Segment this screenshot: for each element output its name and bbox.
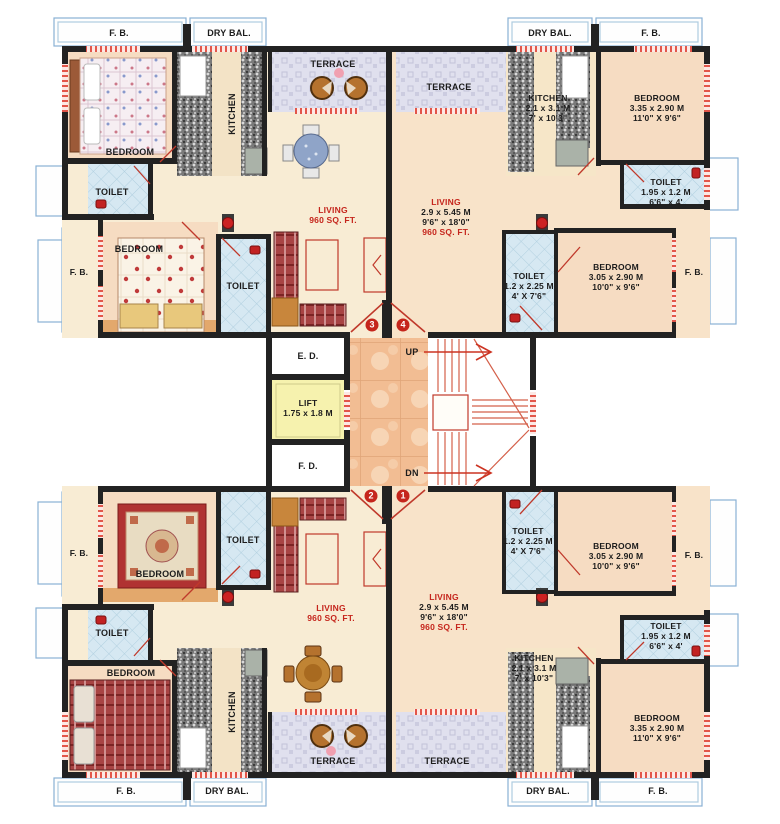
room-dim-ft: 11'0" X 9'6" [630, 733, 685, 743]
living-name: LIVING [307, 603, 355, 613]
room-dim-m: 1.95 x 1.2 M [641, 187, 691, 197]
room-dim-m: 3.35 x 2.90 M [630, 103, 685, 113]
lift-name: LIFT [283, 398, 333, 408]
bedroom2-label-flat4: BEDROOM 3.05 x 2.90 M 10'0" x 9'6" [589, 262, 644, 292]
room-dim-m: 2.9 x 5.45 M [421, 207, 471, 217]
electrical-duct-label: E. D. [297, 351, 318, 361]
toilet2-label-flat2: TOILET [226, 535, 259, 545]
room-name: KITCHEN [512, 653, 557, 663]
bedroom2-label-flat2: BEDROOM [107, 668, 155, 678]
double-bed [70, 58, 166, 154]
room-dim-m: 2.9 x 5.45 M [419, 602, 469, 612]
living-label-flat2: LIVING 960 SQ. FT. [307, 603, 355, 623]
double-bed [70, 680, 170, 770]
lift-dim: 1.75 x 1.8 M [283, 408, 333, 418]
fb-label-top-left: F. B. [109, 28, 129, 38]
fire-duct-label: F. D. [298, 461, 318, 471]
room-name: TOILET [641, 621, 691, 631]
lift-label: LIFT 1.75 x 1.8 M [283, 398, 333, 418]
room-name: TOILET [503, 526, 553, 536]
flat-number-3: 3 [366, 319, 379, 332]
stairs-up-label: UP [406, 347, 419, 357]
living-area: 960 SQ. FT. [421, 227, 471, 237]
room-dim-ft: 10'0" x 9'6" [589, 282, 644, 292]
room-dim-ft: 10'0" x 9'6" [589, 561, 644, 571]
fb-label-right-flat1: F. B. [685, 550, 703, 560]
room-dim-m: 3.05 x 2.90 M [589, 272, 644, 282]
fb-label-top-right: F. B. [641, 28, 661, 38]
living-area: 960 SQ. FT. [419, 622, 469, 632]
fb-label-right-flat4: F. B. [685, 267, 703, 277]
stairs-dn-label: DN [405, 468, 418, 478]
floor-plan-drawing [0, 0, 780, 824]
dry-balcony-label-bottom-right: DRY BAL. [526, 786, 570, 796]
room-dim-m: 2.1 x 3.1 M [526, 103, 571, 113]
room-dim-m: 1.2 x 2.25 M [504, 281, 554, 291]
living-name: LIVING [419, 592, 469, 602]
flat-number-1: 1 [397, 490, 410, 503]
toilet2-label-flat3: TOILET [226, 281, 259, 291]
terrace-label-flat1: TERRACE [425, 756, 470, 766]
room-name: BEDROOM [589, 541, 644, 551]
room-dim-ft: 4' X 7'6" [504, 291, 554, 301]
toilet1-label-flat2: TOILET [95, 628, 128, 638]
living-name: LIVING [421, 197, 471, 207]
living-area: 960 SQ. FT. [307, 613, 355, 623]
flat-number-2: 2 [365, 490, 378, 503]
living-name: LIVING [309, 205, 357, 215]
dry-balcony-label-bottom-left: DRY BAL. [205, 786, 249, 796]
fb-label-bottom-right: F. B. [648, 786, 668, 796]
bedroom1-label-flat4: BEDROOM 3.35 x 2.90 M 11'0" X 9'6" [630, 93, 685, 123]
living-area: 960 SQ. FT. [309, 215, 357, 225]
living-label-flat1: LIVING 2.9 x 5.45 M 9'6" x 18'0" 960 SQ.… [419, 592, 469, 632]
floor-plan: F. B. DRY BAL. DRY BAL. F. B. TERRACE TE… [0, 0, 780, 824]
room-dim-ft: 6'6" x 4' [641, 641, 691, 651]
toilet2-label-flat4: TOILET 1.2 x 2.25 M 4' X 7'6" [504, 271, 554, 301]
room-dim-ft: 11'0" X 9'6" [630, 113, 685, 123]
bedroom2-label-flat1: BEDROOM 3.05 x 2.90 M 10'0" x 9'6" [589, 541, 644, 571]
room-dim-ft: 9'6" x 18'0" [421, 217, 471, 227]
room-dim-ft: 9'6" x 18'0" [419, 612, 469, 622]
terrace-label-flat4: TERRACE [427, 82, 472, 92]
terrace-label-flat3: TERRACE [311, 59, 356, 69]
bedroom1-label-flat3: BEDROOM [106, 147, 154, 157]
room-dim-ft: 6'6" x 4' [641, 197, 691, 207]
toilet1-label-flat3: TOILET [95, 187, 128, 197]
room-name: TOILET [504, 271, 554, 281]
fb-label-left-flat2: F. B. [70, 548, 88, 558]
toilet2-label-flat1: TOILET 1.2 x 2.25 M 4' X 7'6" [503, 526, 553, 556]
room-dim-ft: 4' X 7'6" [503, 546, 553, 556]
kitchen-label-flat4: KITCHEN 2.1 x 3.1 M 7' x 10'3" [526, 93, 571, 123]
room-dim-m: 3.05 x 2.90 M [589, 551, 644, 561]
kitchen-label-flat2: KITCHEN [227, 691, 237, 732]
toilet1-label-flat1: TOILET 1.95 x 1.2 M 6'6" x 4' [641, 621, 691, 651]
room-dim-m: 1.95 x 1.2 M [641, 631, 691, 641]
room-dim-ft: 7' x 10'3" [512, 673, 557, 683]
room-dim-ft: 7' x 10'3" [526, 113, 571, 123]
room-dim-m: 3.35 x 2.90 M [630, 723, 685, 733]
living-label-flat3: LIVING 960 SQ. FT. [309, 205, 357, 225]
dry-balcony-label-top-left: DRY BAL. [207, 28, 251, 38]
flat-number-4: 4 [397, 319, 410, 332]
room-name: TOILET [641, 177, 691, 187]
fb-label-bottom-left: F. B. [116, 786, 136, 796]
room-name: BEDROOM [630, 93, 685, 103]
kitchen-label-flat1: KITCHEN 2.1 x 3.1 M 7' x 10'3" [512, 653, 557, 683]
room-dim-m: 2.1 x 3.1 M [512, 663, 557, 673]
kitchen-label-flat3: KITCHEN [227, 93, 237, 134]
room-dim-m: 1.2 x 2.25 M [503, 536, 553, 546]
room-name: BEDROOM [589, 262, 644, 272]
dry-balcony-label-top-right: DRY BAL. [528, 28, 572, 38]
fb-label-left-flat3: F. B. [70, 267, 88, 277]
bedroom1-label-flat2: BEDROOM [136, 569, 184, 579]
bedroom2-label-flat3: BEDROOM [115, 244, 163, 254]
room-name: BEDROOM [630, 713, 685, 723]
room-name: KITCHEN [526, 93, 571, 103]
terrace-label-flat2: TERRACE [311, 756, 356, 766]
living-label-flat4: LIVING 2.9 x 5.45 M 9'6" x 18'0" 960 SQ.… [421, 197, 471, 237]
toilet1-label-flat4: TOILET 1.95 x 1.2 M 6'6" x 4' [641, 177, 691, 207]
bedroom1-label-flat1: BEDROOM 3.35 x 2.90 M 11'0" X 9'6" [630, 713, 685, 743]
